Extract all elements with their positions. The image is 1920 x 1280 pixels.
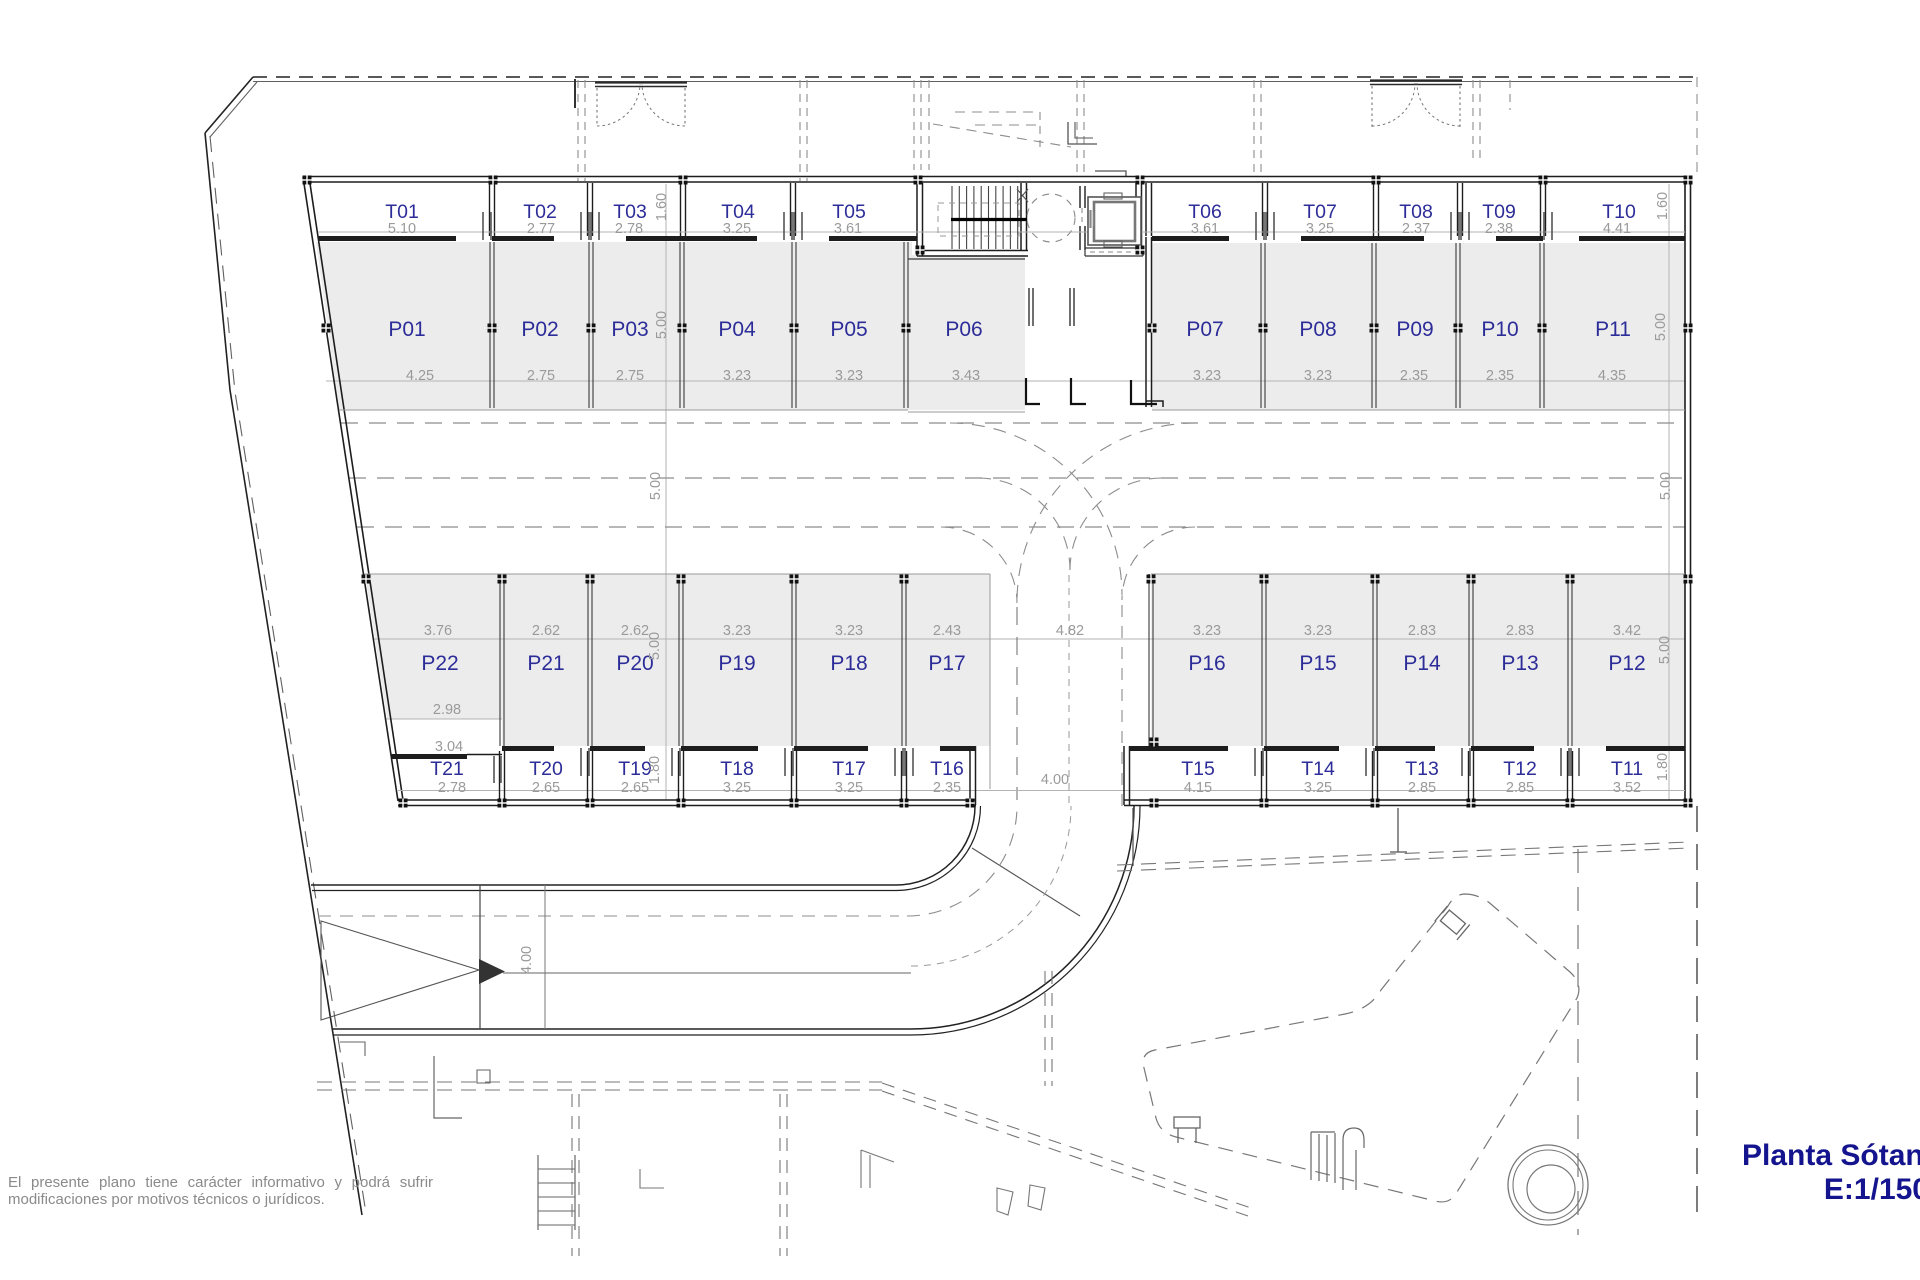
svg-text:5.00: 5.00 xyxy=(1653,313,1669,341)
svg-text:3.61: 3.61 xyxy=(1191,221,1219,237)
svg-text:P11: P11 xyxy=(1595,318,1631,341)
svg-text:2.65: 2.65 xyxy=(532,780,560,796)
svg-text:T07: T07 xyxy=(1303,201,1337,223)
svg-text:2.65: 2.65 xyxy=(621,780,649,796)
svg-text:1.80: 1.80 xyxy=(1655,753,1671,781)
svg-text:P21: P21 xyxy=(527,652,564,675)
svg-text:2.98: 2.98 xyxy=(433,702,461,718)
svg-text:5.00: 5.00 xyxy=(1658,472,1674,500)
svg-text:3.61: 3.61 xyxy=(834,221,862,237)
svg-text:3.42: 3.42 xyxy=(1613,623,1641,639)
svg-text:P07: P07 xyxy=(1186,318,1223,341)
svg-text:P06: P06 xyxy=(945,318,982,341)
svg-text:T01: T01 xyxy=(385,201,419,223)
svg-text:T13: T13 xyxy=(1405,758,1439,780)
svg-text:T10: T10 xyxy=(1602,201,1636,223)
svg-text:T18: T18 xyxy=(720,758,754,780)
svg-text:1.60: 1.60 xyxy=(654,193,670,221)
svg-text:4.41: 4.41 xyxy=(1603,221,1631,237)
svg-text:Planta Sótano: Planta Sótano xyxy=(1742,1139,1920,1172)
svg-text:T09: T09 xyxy=(1482,201,1516,223)
svg-text:2.62: 2.62 xyxy=(532,623,560,639)
svg-text:3.23: 3.23 xyxy=(1193,368,1221,384)
svg-text:3.23: 3.23 xyxy=(835,623,863,639)
svg-text:4.00: 4.00 xyxy=(519,946,535,974)
svg-text:3.52: 3.52 xyxy=(1613,780,1641,796)
svg-text:2.37: 2.37 xyxy=(1402,221,1430,237)
svg-text:3.04: 3.04 xyxy=(435,739,463,755)
svg-text:5.00: 5.00 xyxy=(654,311,670,339)
svg-text:2.77: 2.77 xyxy=(527,221,555,237)
svg-text:P16: P16 xyxy=(1188,652,1225,675)
svg-text:5.10: 5.10 xyxy=(388,221,416,237)
svg-text:5.00: 5.00 xyxy=(648,472,664,500)
svg-text:2.75: 2.75 xyxy=(527,368,555,384)
svg-text:3.25: 3.25 xyxy=(835,780,863,796)
svg-text:2.38: 2.38 xyxy=(1485,221,1513,237)
svg-text:4.35: 4.35 xyxy=(1598,368,1626,384)
svg-text:P09: P09 xyxy=(1396,318,1433,341)
svg-text:3.23: 3.23 xyxy=(1304,623,1332,639)
svg-text:3.23: 3.23 xyxy=(1193,623,1221,639)
svg-text:3.76: 3.76 xyxy=(424,623,452,639)
svg-text:T17: T17 xyxy=(832,758,866,780)
svg-text:3.25: 3.25 xyxy=(1306,221,1334,237)
svg-text:3.25: 3.25 xyxy=(723,780,751,796)
svg-text:4.15: 4.15 xyxy=(1184,780,1212,796)
svg-text:P19: P19 xyxy=(718,652,755,675)
svg-text:2.43: 2.43 xyxy=(933,623,961,639)
svg-text:3.23: 3.23 xyxy=(1304,368,1332,384)
svg-text:T21: T21 xyxy=(430,758,464,780)
svg-text:1.60: 1.60 xyxy=(1655,192,1671,220)
svg-text:P22: P22 xyxy=(421,652,458,675)
svg-text:P14: P14 xyxy=(1403,652,1441,675)
svg-text:El presente plano tiene caráct: El presente plano tiene carácter informa… xyxy=(8,1174,433,1191)
svg-text:2.75: 2.75 xyxy=(616,368,644,384)
svg-text:P01: P01 xyxy=(388,318,425,341)
svg-text:4.00: 4.00 xyxy=(1041,772,1069,788)
svg-text:3.25: 3.25 xyxy=(1304,780,1332,796)
svg-text:P12: P12 xyxy=(1608,652,1645,675)
svg-text:2.78: 2.78 xyxy=(615,221,643,237)
svg-text:E:1/150: E:1/150 xyxy=(1824,1173,1920,1206)
svg-text:modificaciones por motivos téc: modificaciones por motivos técnicos o ju… xyxy=(8,1191,325,1208)
svg-text:2.85: 2.85 xyxy=(1506,780,1534,796)
svg-text:T16: T16 xyxy=(930,758,964,780)
svg-text:P13: P13 xyxy=(1501,652,1538,675)
svg-text:P03: P03 xyxy=(611,318,648,341)
svg-text:P18: P18 xyxy=(830,652,867,675)
svg-text:2.35: 2.35 xyxy=(933,780,961,796)
svg-text:2.62: 2.62 xyxy=(621,623,649,639)
svg-text:T08: T08 xyxy=(1399,201,1433,223)
svg-text:P04: P04 xyxy=(718,318,756,341)
svg-text:P10: P10 xyxy=(1481,318,1518,341)
svg-text:T03: T03 xyxy=(613,201,647,223)
svg-text:2.83: 2.83 xyxy=(1506,623,1534,639)
svg-text:3.23: 3.23 xyxy=(835,368,863,384)
svg-text:2.35: 2.35 xyxy=(1486,368,1514,384)
svg-text:2.78: 2.78 xyxy=(438,780,466,796)
svg-text:T11: T11 xyxy=(1611,758,1643,780)
svg-text:P15: P15 xyxy=(1299,652,1336,675)
svg-text:T05: T05 xyxy=(832,201,866,223)
svg-text:2.85: 2.85 xyxy=(1408,780,1436,796)
svg-text:4.25: 4.25 xyxy=(406,368,434,384)
svg-text:T15: T15 xyxy=(1181,758,1215,780)
svg-text:P05: P05 xyxy=(830,318,867,341)
svg-text:T04: T04 xyxy=(721,201,755,223)
svg-text:3.43: 3.43 xyxy=(952,368,980,384)
svg-text:T14: T14 xyxy=(1301,758,1335,780)
svg-text:5.00: 5.00 xyxy=(1657,636,1673,664)
svg-text:5.00: 5.00 xyxy=(647,632,663,660)
svg-text:P08: P08 xyxy=(1299,318,1336,341)
svg-text:P17: P17 xyxy=(928,652,965,675)
svg-text:P02: P02 xyxy=(521,318,558,341)
svg-text:T02: T02 xyxy=(523,201,557,223)
svg-text:1.80: 1.80 xyxy=(647,756,663,784)
svg-text:3.23: 3.23 xyxy=(723,623,751,639)
svg-text:T06: T06 xyxy=(1188,201,1222,223)
svg-text:3.25: 3.25 xyxy=(723,221,751,237)
svg-text:3.23: 3.23 xyxy=(723,368,751,384)
svg-text:2.35: 2.35 xyxy=(1400,368,1428,384)
svg-text:T12: T12 xyxy=(1503,758,1537,780)
svg-text:2.83: 2.83 xyxy=(1408,623,1436,639)
svg-text:4.82: 4.82 xyxy=(1056,623,1084,639)
svg-text:T20: T20 xyxy=(529,758,563,780)
